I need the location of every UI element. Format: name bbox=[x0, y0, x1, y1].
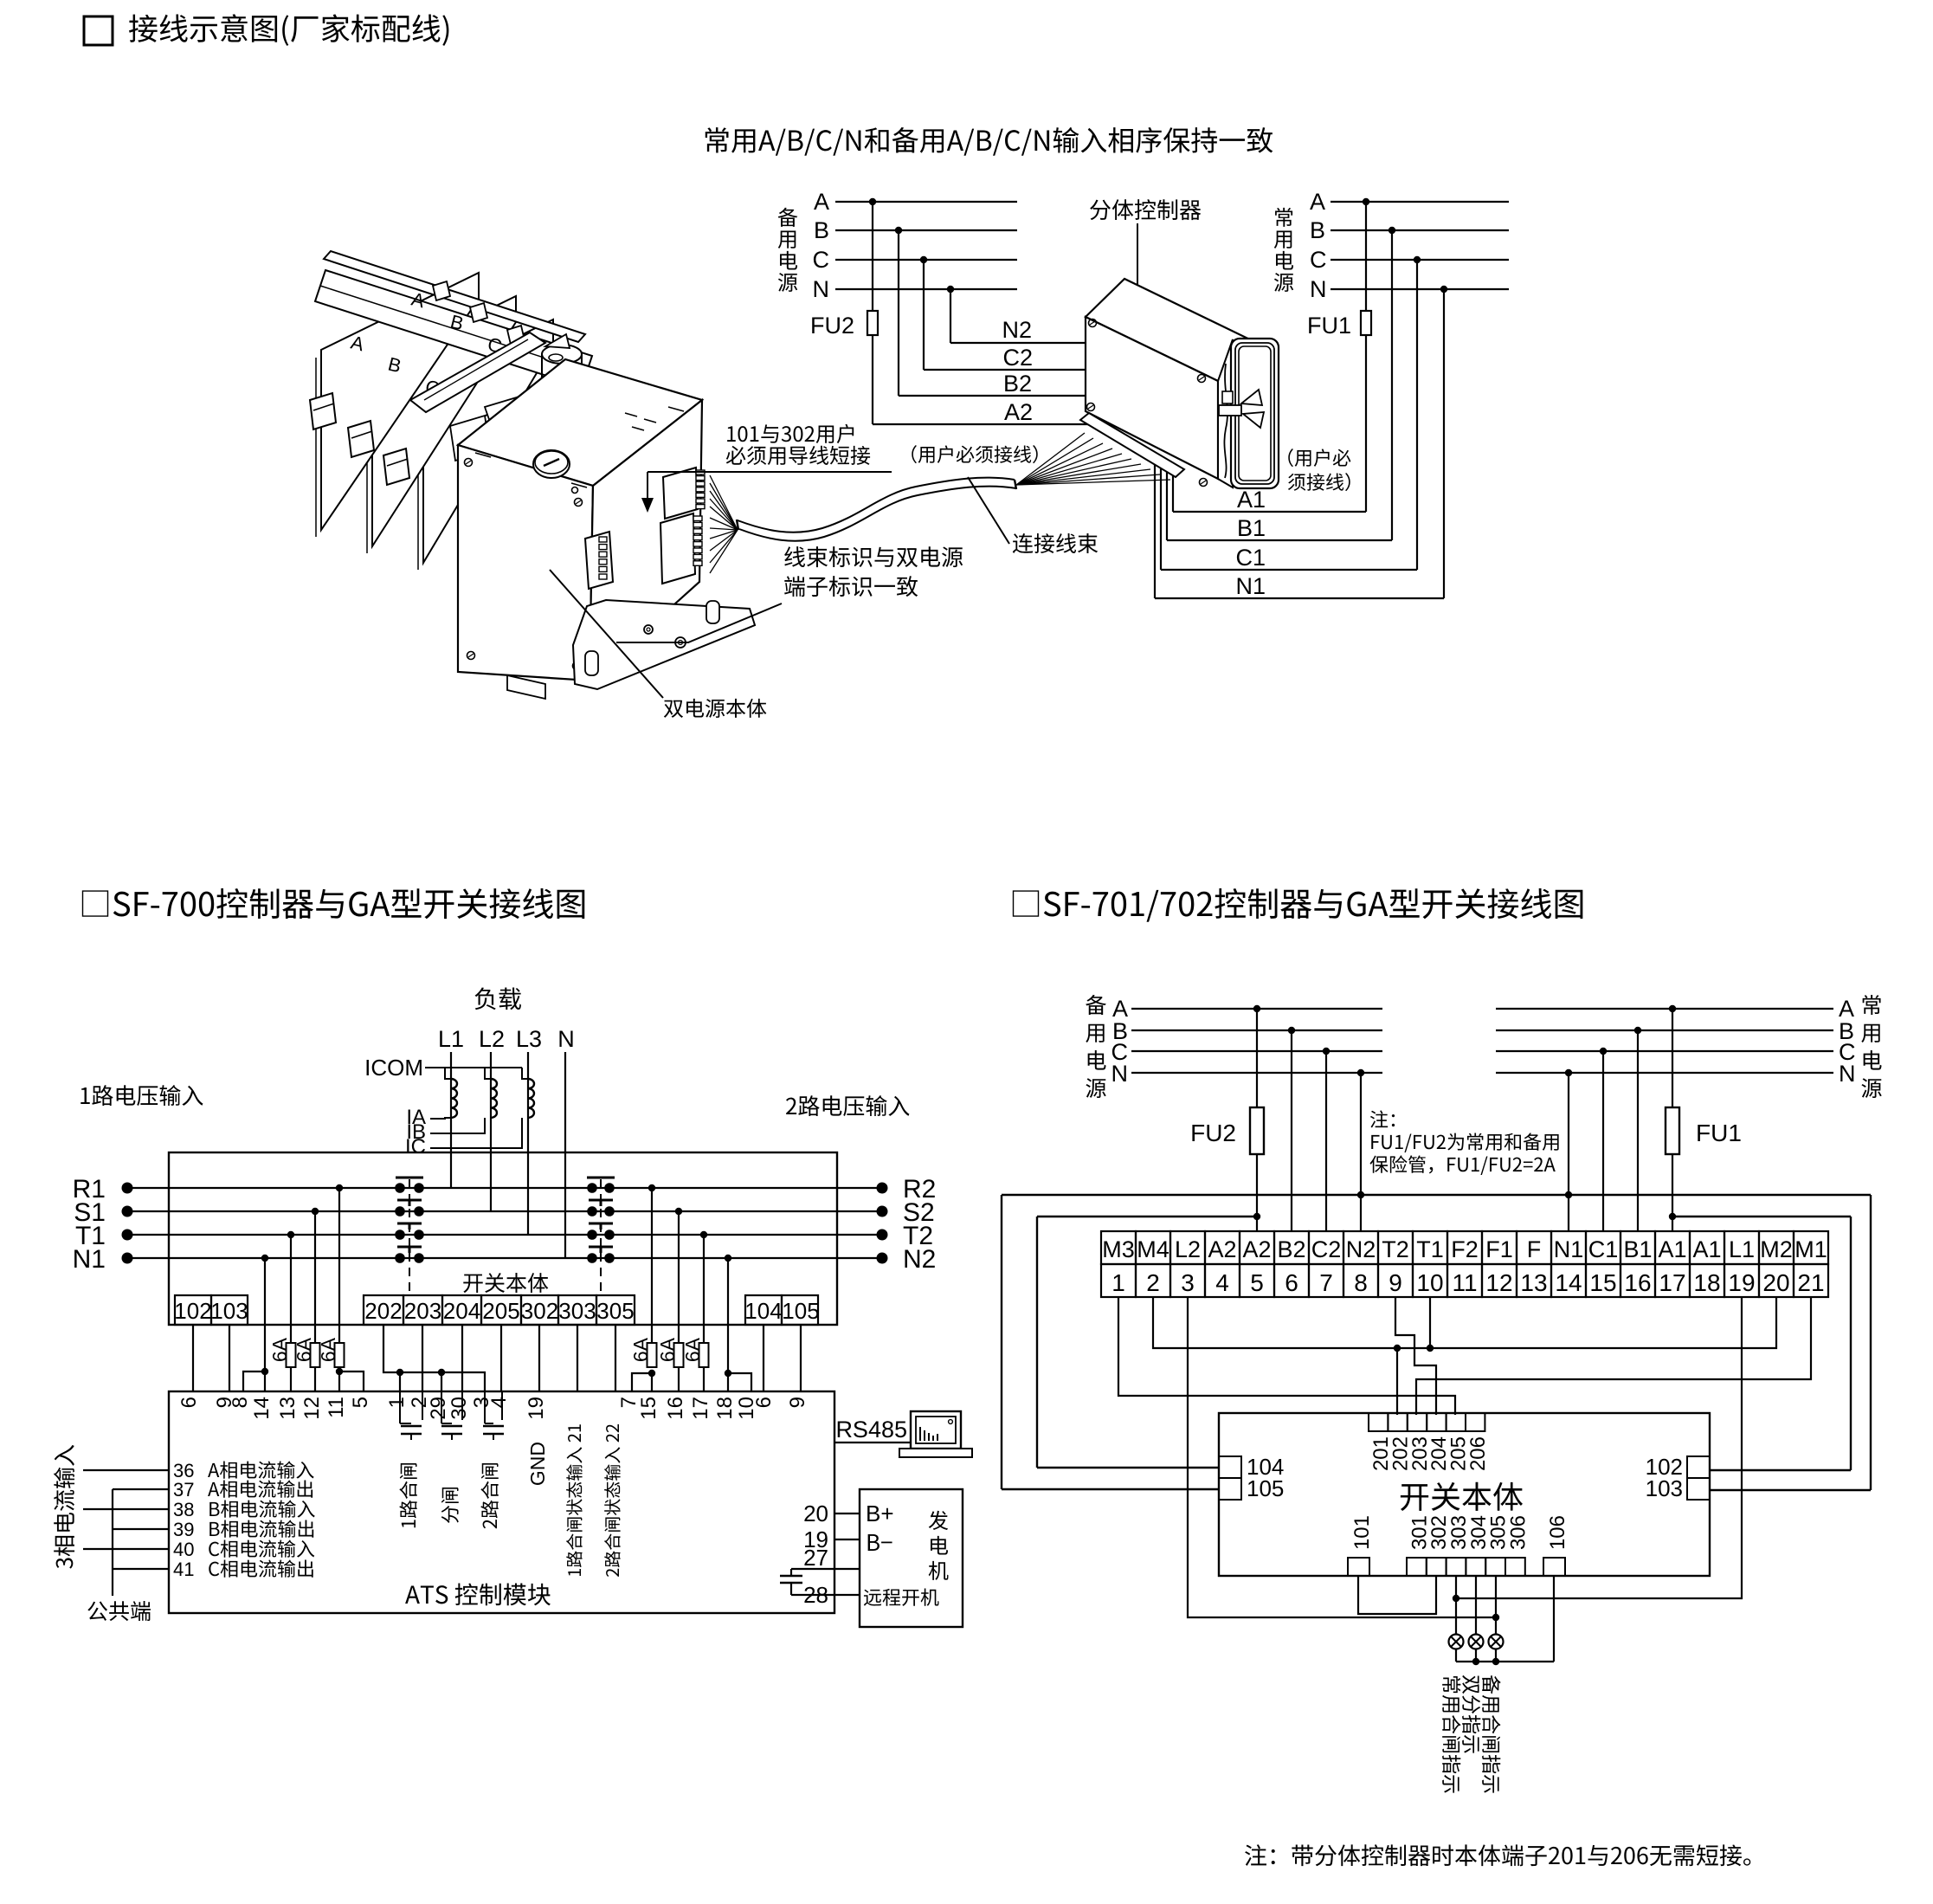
svg-text:105: 105 bbox=[1247, 1475, 1284, 1501]
svg-text:6A: 6A bbox=[268, 1337, 291, 1362]
svg-text:204: 204 bbox=[443, 1298, 480, 1324]
svg-text:203: 203 bbox=[404, 1298, 441, 1324]
svg-text:6: 6 bbox=[177, 1397, 201, 1408]
svg-text:202: 202 bbox=[364, 1298, 402, 1324]
svg-text:N: N bbox=[1111, 1061, 1129, 1087]
svg-text:27: 27 bbox=[803, 1545, 828, 1571]
svg-text:9: 9 bbox=[1389, 1269, 1402, 1296]
svg-text:14: 14 bbox=[250, 1397, 274, 1420]
svg-text:1: 1 bbox=[385, 1397, 409, 1408]
svg-text:20: 20 bbox=[803, 1501, 828, 1526]
svg-text:306: 306 bbox=[1506, 1515, 1530, 1550]
svg-text:40: 40 bbox=[173, 1539, 194, 1560]
svg-text:9: 9 bbox=[786, 1397, 809, 1408]
svg-text:RS485: RS485 bbox=[835, 1417, 907, 1443]
svg-text:B1: B1 bbox=[1623, 1236, 1652, 1262]
svg-text:T2: T2 bbox=[1382, 1236, 1409, 1262]
svg-text:M4: M4 bbox=[1137, 1236, 1169, 1262]
svg-text:N: N bbox=[1310, 276, 1327, 302]
svg-text:F2: F2 bbox=[1451, 1236, 1479, 1262]
svg-text:F1: F1 bbox=[1485, 1236, 1513, 1262]
svg-text:A: A bbox=[1310, 189, 1325, 215]
svg-text:B2: B2 bbox=[1003, 371, 1032, 397]
svg-text:28: 28 bbox=[803, 1582, 828, 1608]
svg-text:ICOM: ICOM bbox=[364, 1055, 423, 1081]
svg-text:106: 106 bbox=[1546, 1515, 1569, 1550]
svg-text:N1: N1 bbox=[1554, 1236, 1584, 1262]
svg-text:B: B bbox=[814, 217, 829, 243]
svg-text:102: 102 bbox=[174, 1298, 211, 1324]
svg-text:6A: 6A bbox=[293, 1337, 315, 1362]
svg-text:16: 16 bbox=[1624, 1269, 1651, 1296]
svg-text:C2: C2 bbox=[1311, 1236, 1342, 1262]
svg-text:6A: 6A bbox=[656, 1337, 679, 1362]
svg-text:A2: A2 bbox=[1208, 1236, 1236, 1262]
svg-text:18: 18 bbox=[713, 1397, 737, 1420]
svg-text:103: 103 bbox=[1646, 1475, 1683, 1501]
svg-text:16: 16 bbox=[664, 1397, 687, 1420]
svg-text:4: 4 bbox=[1215, 1269, 1229, 1296]
svg-text:N2: N2 bbox=[1002, 317, 1032, 343]
svg-text:5: 5 bbox=[1250, 1269, 1264, 1296]
svg-text:A1: A1 bbox=[1692, 1236, 1721, 1262]
svg-text:2: 2 bbox=[1146, 1269, 1160, 1296]
svg-text:C: C bbox=[1310, 247, 1327, 273]
svg-text:104: 104 bbox=[744, 1298, 782, 1324]
svg-text:N1: N1 bbox=[73, 1245, 106, 1274]
svg-text:FU1: FU1 bbox=[1307, 313, 1351, 339]
svg-text:C1: C1 bbox=[1588, 1236, 1619, 1262]
svg-text:38: 38 bbox=[173, 1499, 194, 1520]
svg-text:19: 19 bbox=[1728, 1269, 1755, 1296]
svg-text:10: 10 bbox=[1416, 1269, 1443, 1296]
svg-text:11: 11 bbox=[325, 1397, 348, 1418]
svg-text:B2: B2 bbox=[1277, 1236, 1305, 1262]
svg-text:205: 205 bbox=[482, 1298, 519, 1324]
svg-text:14: 14 bbox=[1555, 1269, 1582, 1296]
svg-text:39: 39 bbox=[173, 1519, 194, 1540]
svg-text:N1: N1 bbox=[1235, 573, 1266, 599]
svg-text:6A: 6A bbox=[681, 1337, 704, 1362]
svg-text:37: 37 bbox=[173, 1479, 194, 1501]
svg-text:M2: M2 bbox=[1760, 1236, 1793, 1262]
svg-text:C1: C1 bbox=[1235, 545, 1266, 571]
svg-text:T1: T1 bbox=[1416, 1236, 1444, 1262]
svg-text:L1: L1 bbox=[438, 1026, 464, 1052]
svg-text:13: 13 bbox=[1520, 1269, 1547, 1296]
svg-text:N: N bbox=[1839, 1061, 1856, 1087]
svg-text:15: 15 bbox=[1589, 1269, 1616, 1296]
svg-text:15: 15 bbox=[637, 1397, 660, 1420]
svg-text:B1: B1 bbox=[1237, 515, 1266, 541]
svg-text:A: A bbox=[814, 189, 829, 215]
svg-text:7: 7 bbox=[1319, 1269, 1333, 1296]
svg-text:13: 13 bbox=[276, 1397, 300, 1420]
svg-text:1: 1 bbox=[1111, 1269, 1125, 1296]
svg-text:17: 17 bbox=[689, 1397, 712, 1420]
svg-text:L3: L3 bbox=[516, 1026, 542, 1052]
svg-text:L2: L2 bbox=[1175, 1236, 1201, 1262]
svg-text:19: 19 bbox=[525, 1397, 548, 1420]
svg-text:305: 305 bbox=[596, 1298, 634, 1324]
svg-text:18: 18 bbox=[1693, 1269, 1720, 1296]
svg-text:N2: N2 bbox=[903, 1245, 936, 1274]
svg-text:L2: L2 bbox=[479, 1026, 505, 1052]
svg-text:M1: M1 bbox=[1794, 1236, 1827, 1262]
svg-text:3: 3 bbox=[1181, 1269, 1195, 1296]
svg-text:A2: A2 bbox=[1004, 399, 1033, 425]
svg-text:FU2: FU2 bbox=[810, 313, 854, 339]
svg-text:11: 11 bbox=[1452, 1269, 1477, 1296]
svg-text:17: 17 bbox=[1659, 1269, 1685, 1296]
svg-text:103: 103 bbox=[210, 1298, 248, 1324]
svg-text:302: 302 bbox=[521, 1298, 558, 1324]
svg-text:105: 105 bbox=[782, 1298, 819, 1324]
svg-text:N: N bbox=[557, 1026, 575, 1052]
svg-text:B: B bbox=[1310, 217, 1325, 243]
svg-text:41: 41 bbox=[173, 1559, 194, 1580]
svg-text:12: 12 bbox=[300, 1397, 324, 1420]
svg-text:8: 8 bbox=[229, 1397, 252, 1408]
svg-text:21: 21 bbox=[1797, 1269, 1824, 1296]
svg-text:8: 8 bbox=[1354, 1269, 1368, 1296]
svg-text:A2: A2 bbox=[1242, 1236, 1271, 1262]
svg-text:12: 12 bbox=[1485, 1269, 1512, 1296]
svg-text:6: 6 bbox=[1285, 1269, 1298, 1296]
svg-text:FU1: FU1 bbox=[1696, 1120, 1742, 1146]
svg-text:6A: 6A bbox=[629, 1337, 652, 1362]
svg-text:6A: 6A bbox=[317, 1337, 339, 1362]
svg-text:B+: B+ bbox=[866, 1501, 894, 1526]
svg-text:A1: A1 bbox=[1237, 487, 1266, 513]
svg-text:6: 6 bbox=[752, 1397, 776, 1408]
svg-text:M3: M3 bbox=[1102, 1236, 1135, 1262]
svg-text:C: C bbox=[813, 247, 830, 273]
svg-text:206: 206 bbox=[1466, 1436, 1490, 1471]
svg-text:29: 29 bbox=[427, 1397, 450, 1420]
svg-text:303: 303 bbox=[558, 1298, 596, 1324]
svg-text:GND: GND bbox=[526, 1442, 549, 1486]
svg-text:101: 101 bbox=[1350, 1515, 1374, 1550]
svg-text:N2: N2 bbox=[1346, 1236, 1376, 1262]
svg-text:L1: L1 bbox=[1729, 1236, 1755, 1262]
svg-text:20: 20 bbox=[1762, 1269, 1789, 1296]
svg-text:N: N bbox=[813, 276, 830, 302]
svg-text:5: 5 bbox=[349, 1397, 372, 1408]
svg-text:30: 30 bbox=[448, 1397, 471, 1420]
svg-text:C2: C2 bbox=[1002, 345, 1033, 371]
svg-text:IC: IC bbox=[405, 1135, 426, 1159]
svg-text:F: F bbox=[1527, 1236, 1542, 1262]
svg-text:4: 4 bbox=[487, 1397, 511, 1408]
svg-text:FU2: FU2 bbox=[1190, 1120, 1236, 1146]
svg-text:A1: A1 bbox=[1658, 1236, 1686, 1262]
